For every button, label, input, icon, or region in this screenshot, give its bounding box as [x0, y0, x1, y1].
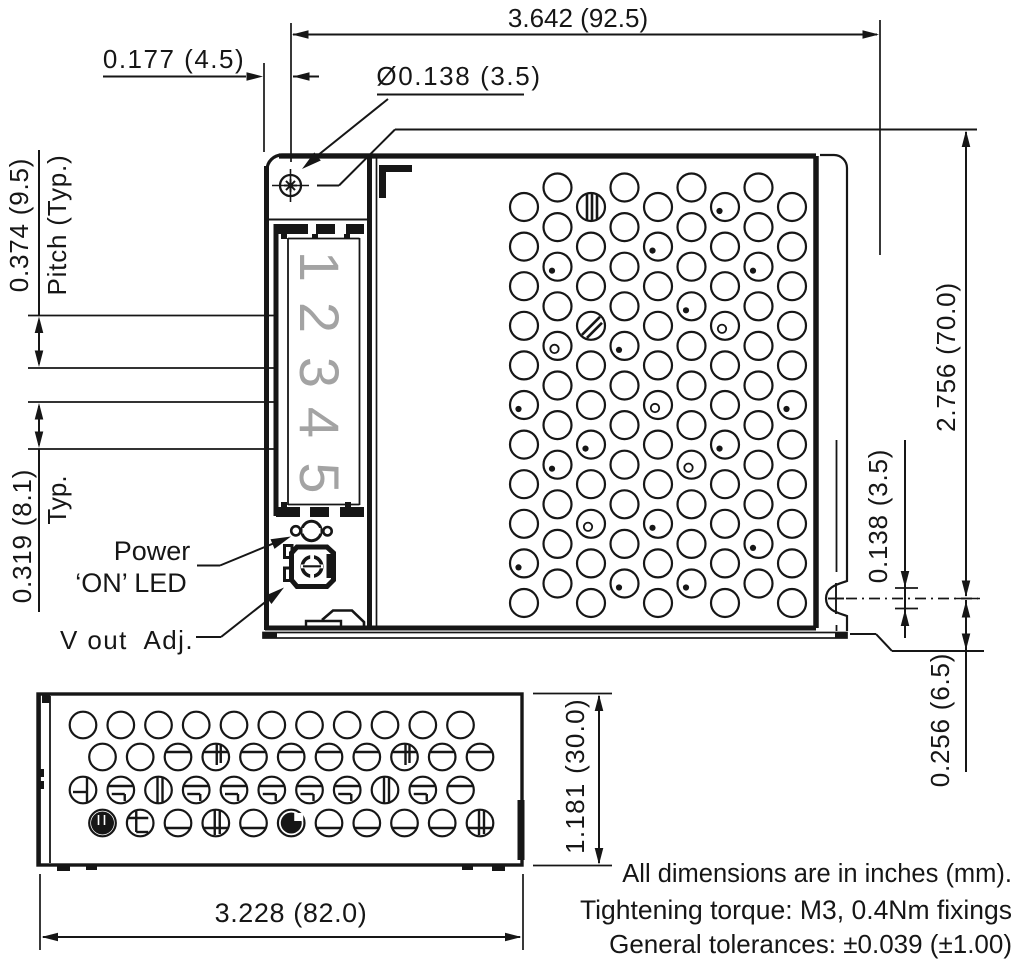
svg-text:1.181 (30.0): 1.181 (30.0): [560, 698, 590, 854]
svg-text:0.177 (4.5): 0.177 (4.5): [103, 44, 245, 74]
svg-text:5: 5: [288, 462, 351, 493]
svg-text:1: 1: [288, 251, 351, 282]
svg-text:Pitch (Typ.): Pitch (Typ.): [42, 154, 72, 295]
svg-text:3: 3: [288, 357, 351, 388]
svg-text:4: 4: [288, 407, 351, 438]
svg-text:Power: Power: [114, 536, 191, 566]
svg-text:Ø0.138 (3.5): Ø0.138 (3.5): [376, 61, 541, 91]
svg-text:3.642 (92.5): 3.642 (92.5): [508, 3, 648, 33]
svg-text:0.319 (8.1): 0.319 (8.1): [7, 469, 37, 604]
svg-text:0.138 (3.5): 0.138 (3.5): [863, 449, 893, 584]
svg-text:‘ON’ LED: ‘ON’ LED: [75, 568, 187, 598]
svg-text:Typ.: Typ.: [42, 475, 72, 524]
svg-text:All dimensions are in inches (: All dimensions are in inches (mm).: [622, 860, 1012, 888]
svg-text:2: 2: [288, 302, 351, 333]
svg-text:General tolerances: ±0.039 (±1: General tolerances: ±0.039 (±1.00): [609, 929, 1012, 959]
svg-text:V out Adj.: V out Adj.: [60, 625, 194, 655]
svg-text:3.228 (82.0): 3.228 (82.0): [215, 898, 368, 928]
svg-text:2.756 (70.0): 2.756 (70.0): [931, 282, 961, 432]
svg-text:Tightening torque: M3, 0.4Nm f: Tightening torque: M3, 0.4Nm fixings: [580, 895, 1012, 925]
svg-text:0.256 (6.5): 0.256 (6.5): [925, 653, 955, 788]
svg-text:0.374 (9.5): 0.374 (9.5): [4, 158, 34, 293]
